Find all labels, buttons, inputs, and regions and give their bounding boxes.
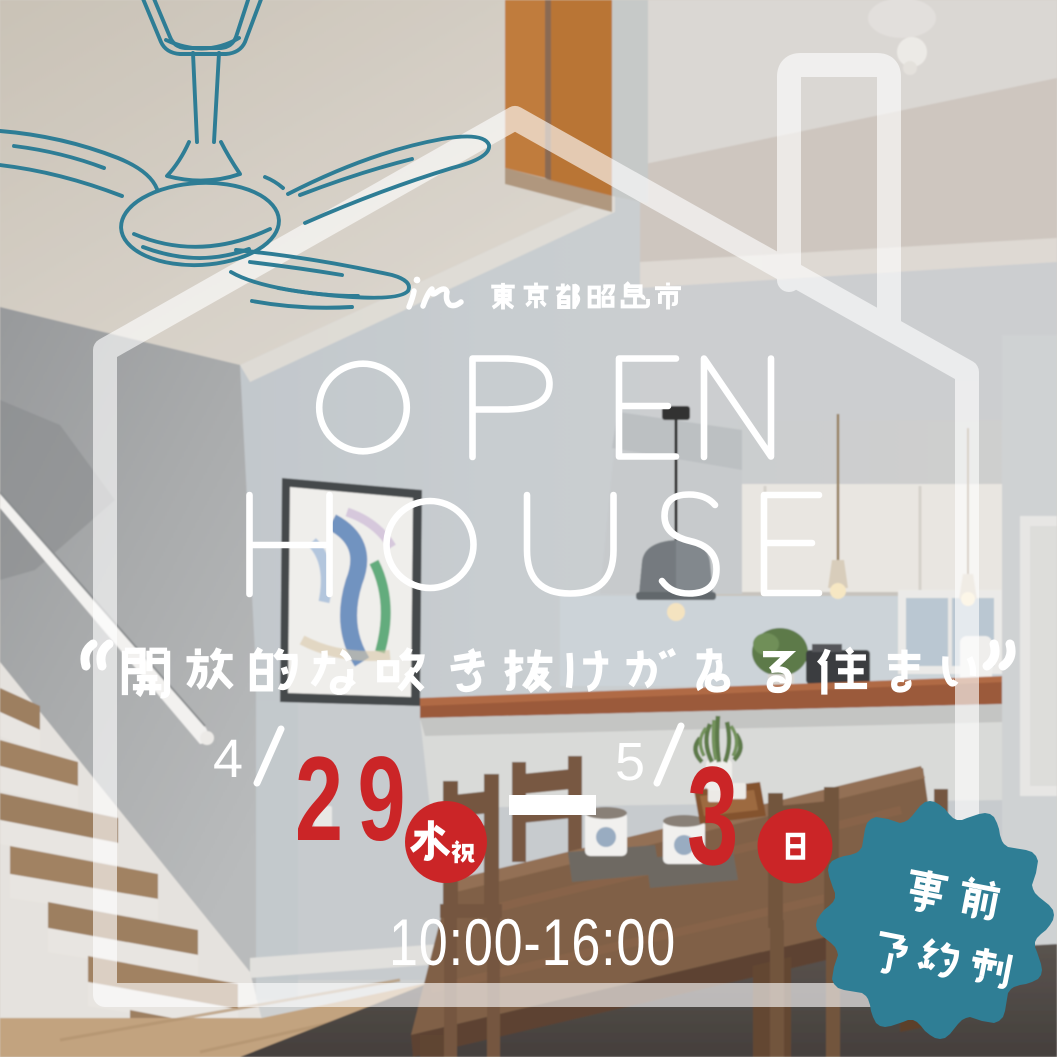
- svg-text:10:00-16:00: 10:00-16:00: [389, 905, 676, 979]
- svg-text:29: 29: [295, 732, 420, 866]
- svg-text:4: 4: [213, 729, 243, 789]
- svg-text:5: 5: [615, 732, 645, 792]
- svg-text:3: 3: [687, 739, 738, 895]
